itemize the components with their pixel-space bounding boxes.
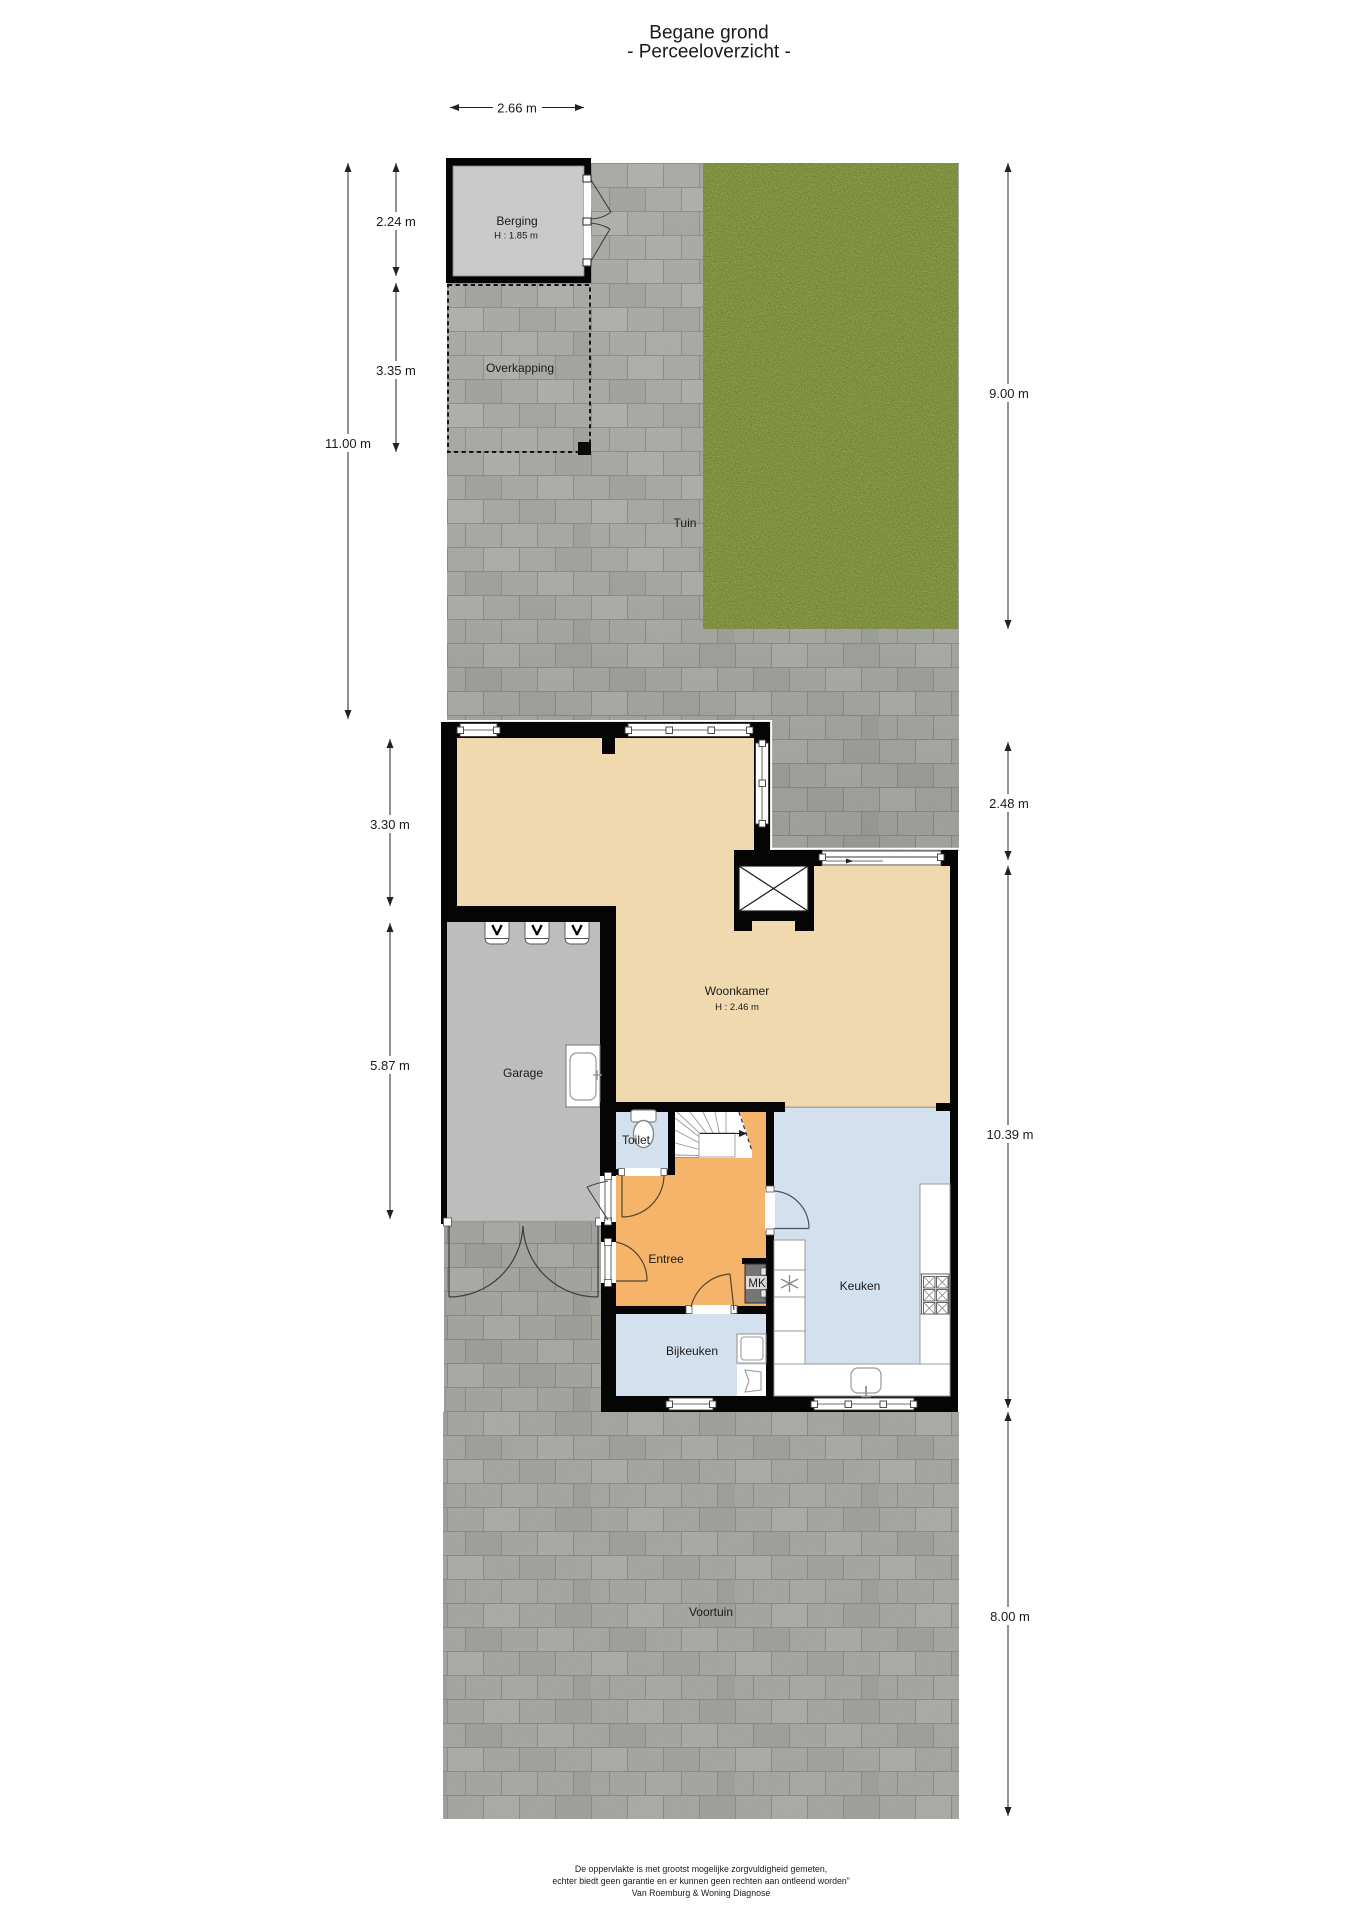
svg-text:- Perceeloverzicht -: - Perceeloverzicht - [627,42,791,63]
svg-text:echter biedt geen garantie en: echter biedt geen garantie en er kunnen … [552,1876,849,1886]
svg-text:Woonkamer: Woonkamer [705,984,769,998]
svg-text:Begane grond: Begane grond [649,23,768,44]
svg-text:H : 2.46 m: H : 2.46 m [715,1002,759,1013]
svg-text:Garage: Garage [503,1066,543,1080]
svg-text:5.87 m: 5.87 m [370,1058,410,1073]
svg-text:10.39 m: 10.39 m [987,1127,1034,1142]
svg-text:2.24 m: 2.24 m [376,214,416,229]
svg-text:Toilet: Toilet [622,1133,651,1147]
svg-text:De oppervlakte is met grootst: De oppervlakte is met grootst mogelijke … [575,1864,827,1874]
svg-text:Berging: Berging [496,214,537,228]
svg-text:MK: MK [748,1278,766,1290]
svg-text:8.00 m: 8.00 m [990,1609,1030,1624]
svg-text:2.48 m: 2.48 m [989,796,1029,811]
svg-text:H : 1.85 m: H : 1.85 m [494,231,538,242]
svg-text:11.00 m: 11.00 m [325,436,371,451]
svg-text:Entree: Entree [648,1252,684,1266]
svg-text:9.00 m: 9.00 m [989,386,1029,401]
svg-text:Tuin: Tuin [674,516,697,530]
svg-text:Keuken: Keuken [840,1279,881,1293]
svg-text:3.35 m: 3.35 m [376,363,416,378]
svg-text:2.66 m: 2.66 m [497,101,537,116]
svg-text:Voortuin: Voortuin [689,1605,733,1619]
svg-text:Overkapping: Overkapping [486,361,554,375]
svg-text:Bijkeuken: Bijkeuken [666,1344,718,1358]
svg-text:3.30 m: 3.30 m [370,817,410,832]
svg-text:Van Roemburg & Woning Diagnose: Van Roemburg & Woning Diagnose [632,1888,771,1898]
